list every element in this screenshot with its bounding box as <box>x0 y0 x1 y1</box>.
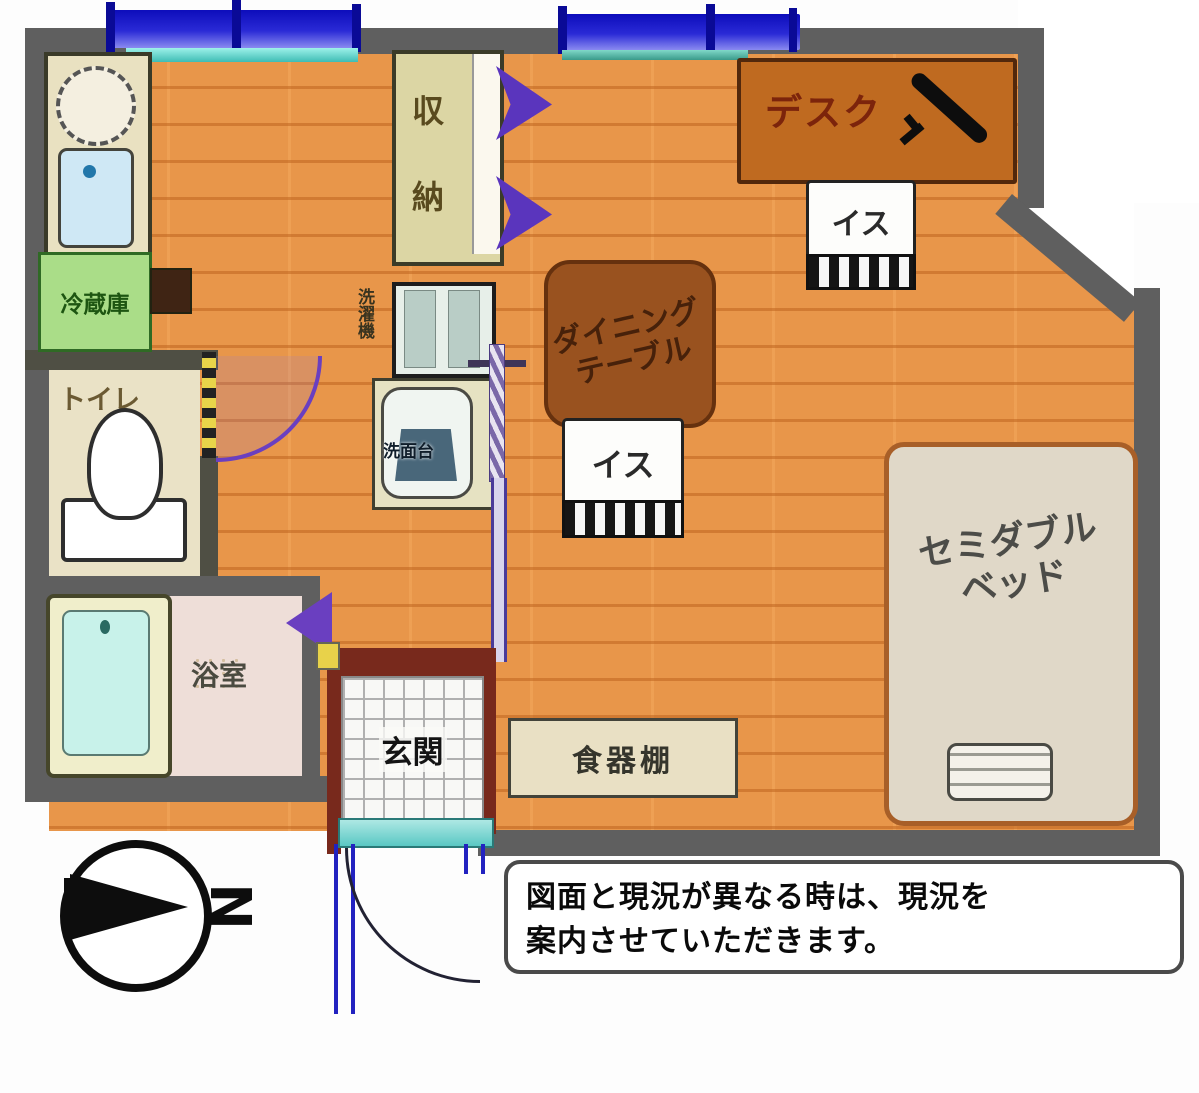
wall-bottom <box>478 830 1160 856</box>
wall-bottom-left <box>25 776 327 802</box>
storage-closet: 収 納 <box>392 50 504 266</box>
window-sill <box>126 48 358 62</box>
window-mullion-icon <box>789 8 797 52</box>
window-top-right <box>560 14 800 50</box>
wall-toilet-right <box>200 456 218 578</box>
wall-toilet-bath <box>25 576 320 596</box>
sink-icon <box>58 148 134 248</box>
chair-bottom-back-icon <box>562 500 684 538</box>
wall-right-upper <box>1018 28 1044 208</box>
compass-arrow-icon <box>70 874 188 940</box>
toilet-room: トイレ <box>49 370 200 576</box>
washbasin: 洗面台 <box>372 378 494 510</box>
window-mullion-icon <box>558 6 567 54</box>
dining-table: ダイニング テーブル <box>544 260 716 428</box>
chair-top-back-icon <box>806 254 916 290</box>
door-latch-icon <box>316 642 340 670</box>
faucet-icon <box>83 165 96 178</box>
bed: セミダブル ベッド <box>884 442 1138 826</box>
toilet-door-leaf <box>202 352 216 458</box>
refrigerator-label: 冷蔵庫 <box>61 285 130 319</box>
window-mullion-icon <box>352 4 361 52</box>
pillow-icon <box>947 743 1053 801</box>
window-mullion-icon <box>706 4 715 54</box>
closet-door-track <box>472 54 500 254</box>
wall-kitchen-toilet <box>25 350 218 370</box>
counter-end-cabinet <box>150 268 192 314</box>
corner-mask <box>1018 0 1199 203</box>
window-mullion-icon <box>106 2 115 54</box>
bed-label: セミダブル ベッド <box>884 500 1139 623</box>
bathroom: 浴室 <box>49 596 302 776</box>
toilet-bowl-icon <box>87 408 163 520</box>
disclaimer-line1: 図面と現況が異なる時は、現況を <box>526 876 1162 920</box>
chair-top-label: イス <box>831 199 890 243</box>
refrigerator: 冷蔵庫 <box>38 252 152 352</box>
washer-drum-icon <box>404 290 436 368</box>
stove-burner-icon <box>56 66 136 146</box>
washer-drum-icon <box>448 290 480 368</box>
cupboard: 食器棚 <box>508 718 738 798</box>
storage-label-1: 収 <box>412 86 444 132</box>
desk-lamp-icon <box>908 70 990 146</box>
entrance-label: 玄関 <box>379 727 447 772</box>
chair-top: イス <box>806 180 916 262</box>
desk: デスク <box>737 58 1017 184</box>
compass <box>60 840 212 992</box>
window-sill <box>562 50 748 60</box>
entrance-tile-floor: 玄関 <box>341 676 484 822</box>
entrance-header-wall <box>327 648 496 676</box>
bathtub-icon <box>46 594 172 778</box>
drain-icon <box>100 620 110 634</box>
cupboard-label: 食器棚 <box>572 736 674 780</box>
dining-table-label: ダイニング テーブル <box>549 294 711 395</box>
storage-label-2: 納 <box>412 172 444 218</box>
accordion-door-icon <box>489 344 505 482</box>
compass-north-label: N <box>197 883 262 930</box>
chair-bottom: イス <box>562 418 684 508</box>
washbasin-label: 洗面台 <box>383 437 434 462</box>
kitchen-counter <box>44 52 152 260</box>
partition-wall-lower <box>491 478 507 662</box>
disclaimer-line2: 案内させていただきます。 <box>526 920 1162 964</box>
bathroom-label: 浴室 <box>191 654 247 694</box>
desk-label: デスク <box>765 82 882 136</box>
chair-bottom-label: イス <box>591 440 654 486</box>
front-door-arc-icon <box>345 848 480 983</box>
floorplan-canvas: 冷蔵庫 トイレ 浴室 収 納 洗濯機 洗面台 <box>0 0 1199 1093</box>
washer-label: 洗濯機 <box>352 288 377 339</box>
disclaimer-box: 図面と現況が異なる時は、現況を 案内させていただきます。 <box>504 860 1184 974</box>
